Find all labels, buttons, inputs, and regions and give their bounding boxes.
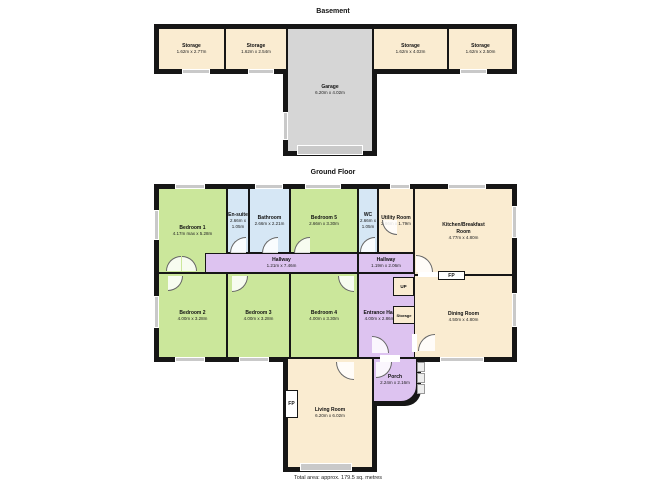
room-basement-storage-2: Storage1.62m x 2.54m <box>225 28 287 70</box>
room-hallway-main: Hallway1.21m x 7.46m <box>205 253 358 273</box>
room-dims: 4.00m x 2.86m <box>364 316 396 322</box>
porch-step <box>417 362 425 372</box>
fireplace-label: FP <box>288 401 294 407</box>
room-label: Bedroom 5 <box>309 215 339 221</box>
window <box>248 69 274 74</box>
room-label: Dining Room <box>448 311 479 317</box>
opening-entrance-dining <box>412 334 417 352</box>
window <box>512 206 517 238</box>
room-stairs-up: UP <box>393 277 414 296</box>
room-dims: 1.62m x 2.50m <box>466 49 496 55</box>
room-label: Kitchen/Breakfast Room <box>435 222 493 235</box>
room-dims: 2.66m x 1.05m <box>359 218 377 229</box>
room-dims: 1.21m x 7.46m <box>267 263 297 269</box>
ground-floor-title: Ground Floor <box>273 169 393 176</box>
window <box>175 184 205 189</box>
room-dims: 4.00m x 3.30m <box>309 316 339 322</box>
room-hallway-rear: Hallway1.19m x 2.06m <box>358 253 414 273</box>
window <box>305 184 341 189</box>
porch-step <box>417 373 425 383</box>
room-dims: 6.20m x 6.02m <box>315 413 345 419</box>
window <box>283 112 288 140</box>
room-label: Bedroom 3 <box>244 310 274 316</box>
room-label: Bedroom 4 <box>309 310 339 316</box>
room-label: Bedroom 2 <box>178 310 208 316</box>
room-dims: 2.66m x 2.21m <box>255 221 285 227</box>
window <box>239 357 269 362</box>
room-dims: 4.50m x 4.80m <box>448 317 479 323</box>
window <box>154 296 159 328</box>
room-dims: 1.19m x 2.06m <box>371 263 401 269</box>
window <box>154 210 159 240</box>
window <box>255 184 283 189</box>
window <box>448 184 486 189</box>
window <box>175 357 205 362</box>
room-dims: 4.77m x 4.80m <box>435 235 493 241</box>
room-dims: 2.66m x 3.30m <box>309 221 339 227</box>
room-living: Living Room6.20m x 6.02m <box>287 358 373 468</box>
room-dims: 4.00m x 3.28m <box>178 316 208 322</box>
room-basement-storage-1: Storage1.62m x 2.77m <box>158 28 225 70</box>
room-label: Bathroom <box>255 215 285 221</box>
room-basement-storage-3: Storage1.62m x 4.02m <box>373 28 448 70</box>
porch-step <box>417 384 425 394</box>
basement-title: Basement <box>273 8 393 15</box>
room-dims: 4.00m x 3.28m <box>244 316 274 322</box>
room-label: Storage <box>397 313 412 318</box>
window <box>182 69 210 74</box>
room-label: Entrance Hall <box>364 310 396 316</box>
opening-entrance-porch <box>380 355 400 362</box>
room-storage-cupboard: Storage <box>393 306 415 324</box>
room-label: UP <box>400 284 406 289</box>
total-area-note: Total area: approx. 179.5 sq. metres <box>238 475 438 481</box>
patio-door <box>300 463 352 471</box>
fireplace-label: FP <box>448 273 454 279</box>
floorplan-canvas: Basement Ground Floor Total area: approx… <box>0 0 668 490</box>
garage-door <box>297 145 363 155</box>
room-basement-storage-4: Storage1.62m x 2.50m <box>448 28 513 70</box>
room-dims: 1.62m x 2.77m <box>177 49 207 55</box>
room-dims: 4.17m max x 5.28m <box>173 231 213 237</box>
room-garage: Garage6.20m x 4.02m <box>287 28 373 152</box>
room-dims: 2.24m x 2.16m <box>380 380 410 386</box>
room-dims: 1.62m x 4.02m <box>396 49 426 55</box>
opening-kitchen-dining <box>418 272 438 277</box>
window <box>512 293 517 327</box>
fireplace-dining: FP <box>438 271 465 280</box>
fireplace-living: FP <box>285 390 298 418</box>
window <box>460 69 487 74</box>
room-dims: 1.62m x 2.54m <box>241 49 271 55</box>
room-dims: 2.66m x 1.05m <box>228 218 248 229</box>
window <box>390 184 410 189</box>
room-dims: 6.20m x 4.02m <box>315 90 345 96</box>
window <box>440 357 484 362</box>
